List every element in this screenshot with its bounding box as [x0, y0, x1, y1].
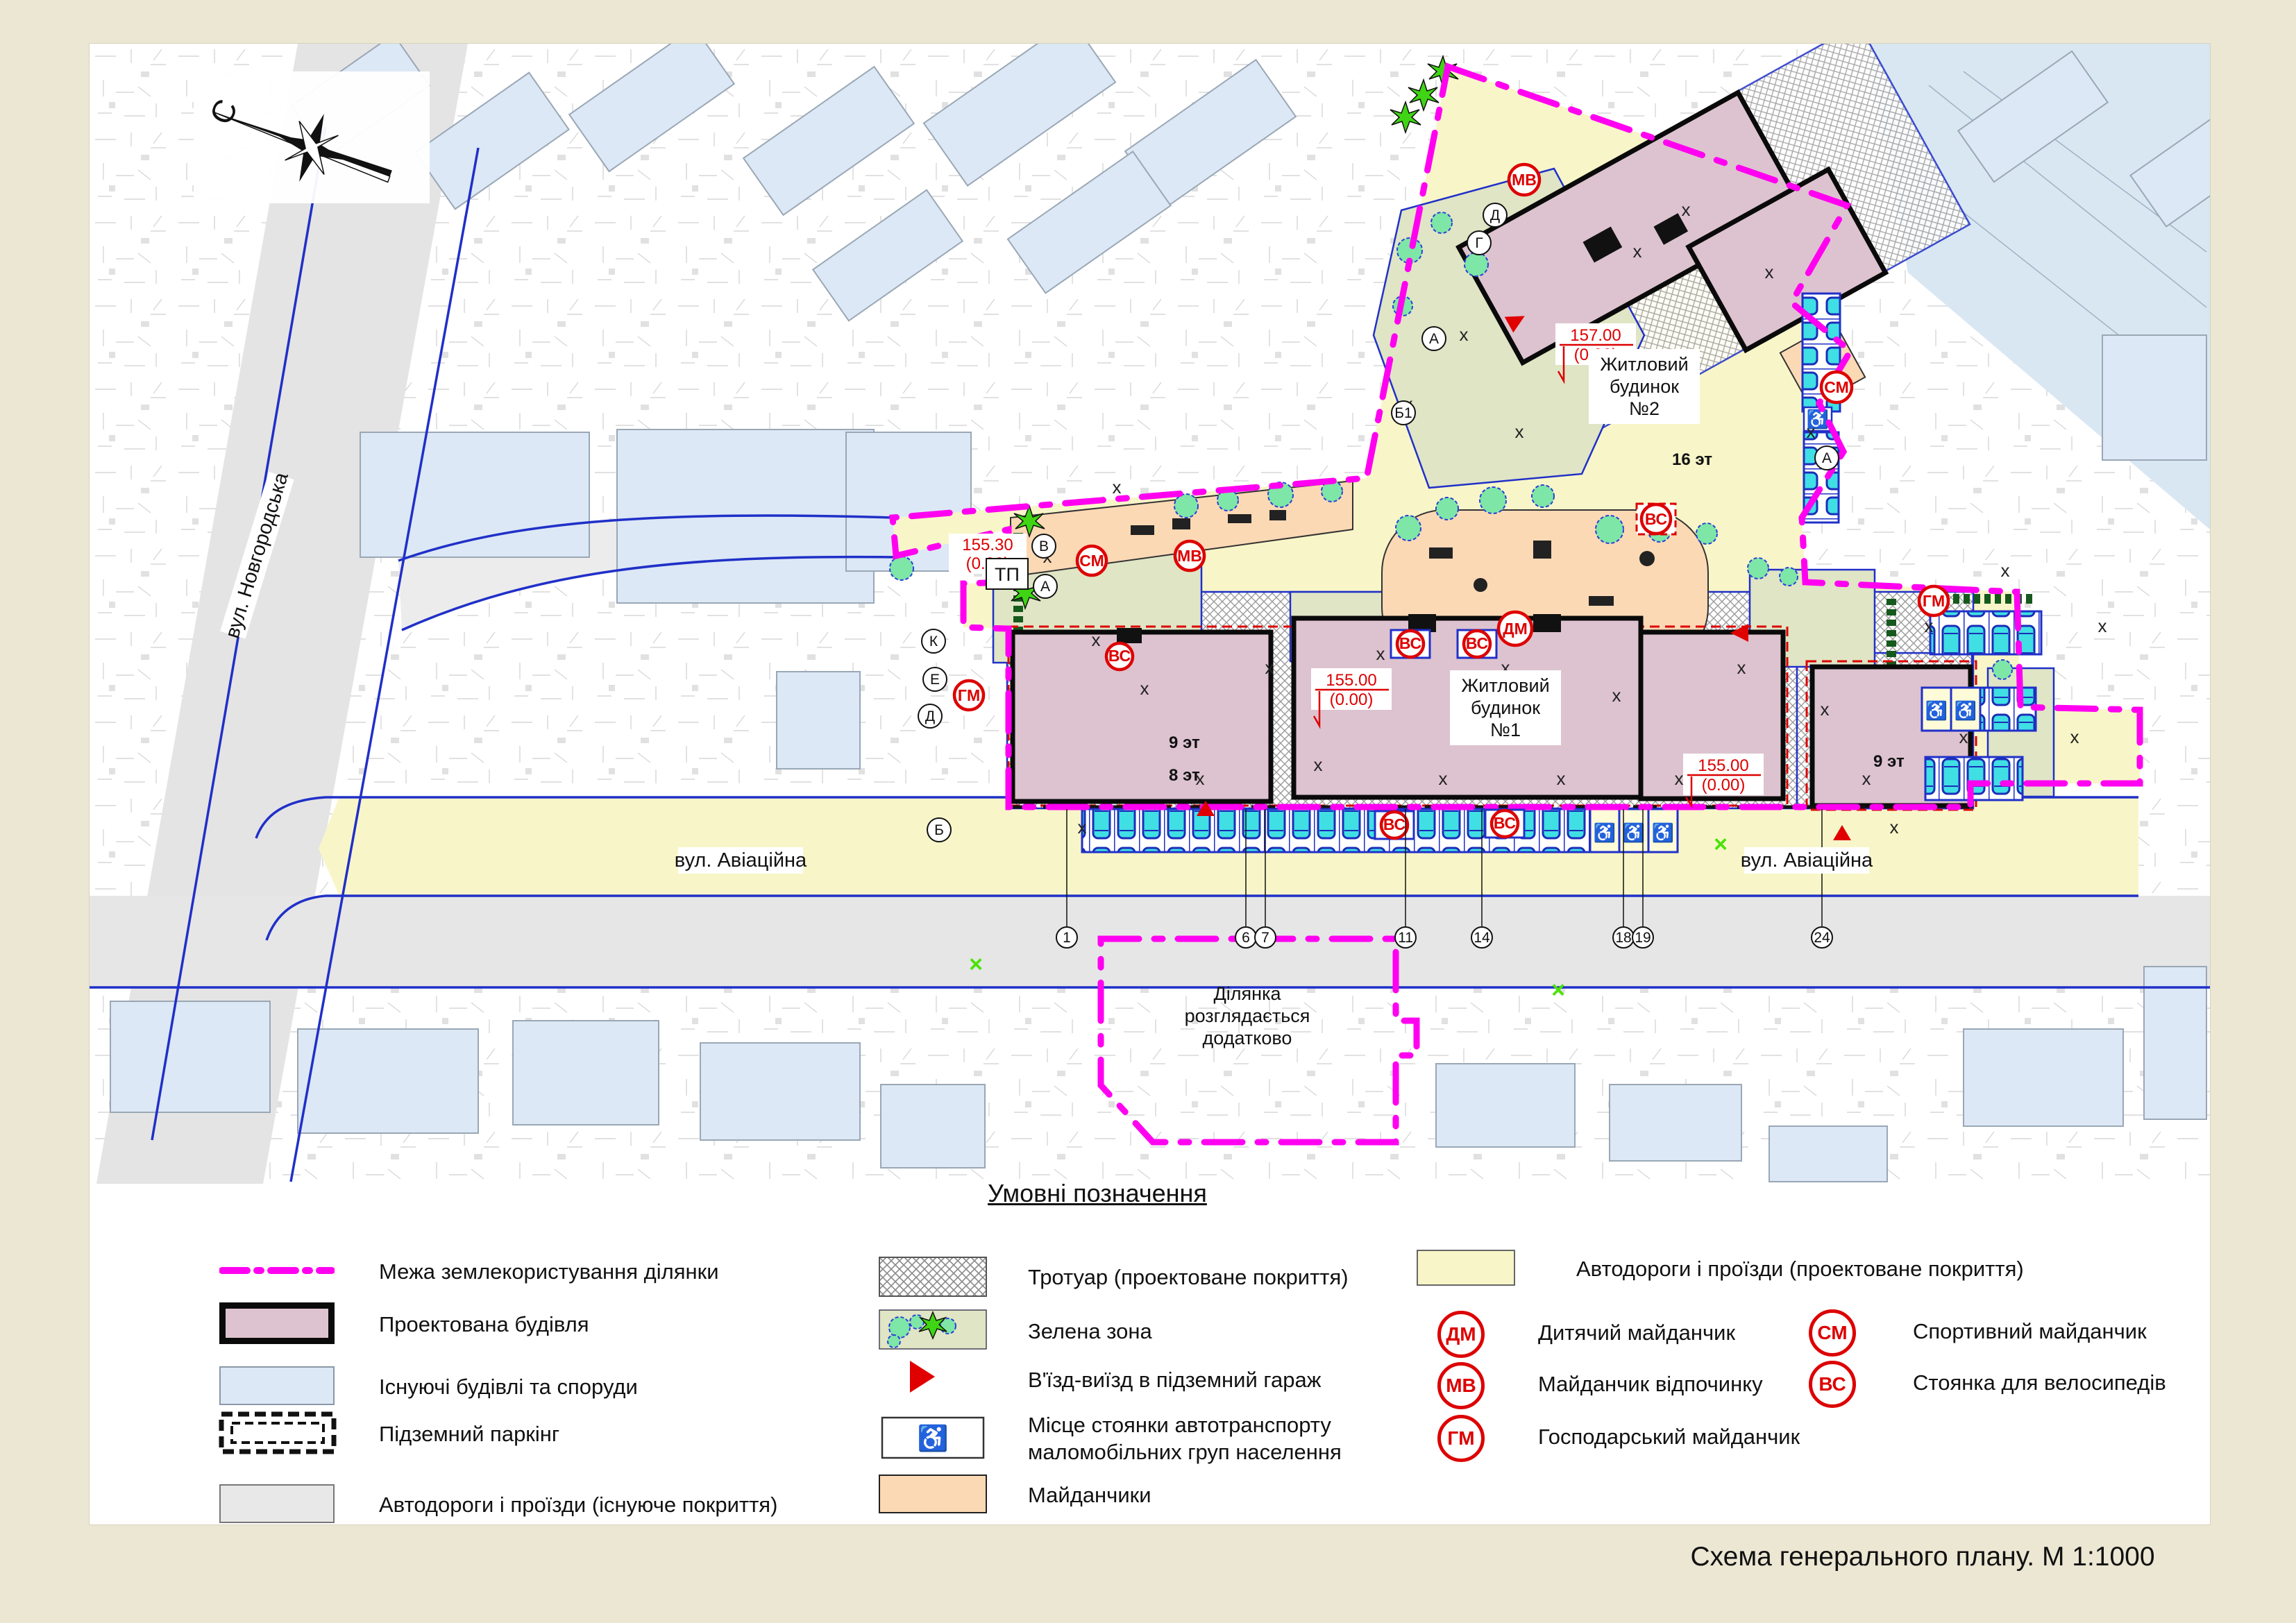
plan-title: Схема генерального плану. М 1:1000	[1652, 1542, 2193, 1572]
legend-label: Існуючі будівлі та споруди	[379, 1375, 638, 1400]
legend-marker-sm: СМ	[1809, 1309, 1856, 1357]
lime-x-mark: ×	[1714, 831, 1728, 858]
svg-text:x: x	[1807, 421, 1816, 442]
marker-vs: ВС	[1641, 504, 1671, 534]
plan-sheet: ♿ ♿ ♿ ♿ ♿ ♿ × × × xx xx xx	[89, 43, 2211, 1525]
svg-text:9 эт: 9 эт	[1873, 752, 1905, 771]
svg-text:Д: Д	[1490, 207, 1500, 223]
svg-text:x: x	[1675, 768, 1684, 789]
building-2-label: Житловий будинок №2	[1589, 349, 1700, 424]
legend-marker-gm: ГМ	[1437, 1415, 1485, 1462]
legend-label: Проектована будівля	[379, 1312, 589, 1337]
svg-text:x: x	[1092, 629, 1101, 650]
svg-text:x: x	[2098, 615, 2107, 636]
legend-existing-road-swatch	[219, 1484, 335, 1523]
street-aviatsiina-left: вул. Авіаційна	[675, 847, 807, 874]
wheelchair-icon: ♿	[1623, 822, 1645, 843]
svg-text:Житловий: Житловий	[1461, 675, 1549, 696]
svg-text:Б1: Б1	[1394, 405, 1412, 421]
legend-label: Автодороги і проїзди (існуюче покриття)	[379, 1493, 777, 1518]
legend-disabled-parking-swatch: ♿	[881, 1416, 985, 1459]
svg-text:СМ: СМ	[1824, 378, 1848, 396]
building-1-label: Житловий будинок №1	[1450, 670, 1561, 745]
svg-text:А: А	[1040, 579, 1050, 595]
svg-text:1: 1	[1063, 930, 1071, 946]
legend-label: Підземний паркінг	[379, 1422, 559, 1447]
svg-text:Ділянка: Ділянка	[1214, 983, 1282, 1004]
svg-text:вул. Авіаційна: вул. Авіаційна	[675, 849, 807, 872]
svg-text:157.00: 157.00	[1570, 326, 1621, 345]
svg-text:x: x	[1682, 199, 1691, 220]
svg-text:№2: №2	[1629, 398, 1660, 419]
svg-text:x: x	[1557, 768, 1566, 789]
svg-text:155.30: 155.30	[962, 536, 1013, 554]
svg-text:Б: Б	[934, 822, 944, 838]
svg-text:будинок: будинок	[1610, 376, 1679, 397]
legend-projected-road-swatch	[1417, 1250, 1515, 1286]
marker-sm: СМ	[1821, 372, 1852, 402]
svg-text:x: x	[1959, 726, 1968, 747]
svg-text:155.00: 155.00	[1326, 671, 1376, 690]
svg-text:(0.00): (0.00)	[1330, 690, 1374, 709]
svg-text:x: x	[1633, 241, 1642, 262]
svg-text:19: 19	[1635, 930, 1651, 946]
svg-text:18: 18	[1615, 930, 1631, 946]
svg-text:x: x	[1113, 477, 1122, 498]
legend-label: Межа землекористування ділянки	[379, 1259, 719, 1284]
legend-underground-parking-swatch	[218, 1411, 337, 1455]
marker-vs: ВС	[1106, 643, 1133, 670]
legend-boundary-line	[219, 1259, 335, 1282]
svg-text:В: В	[1039, 538, 1049, 554]
svg-text:Житловий: Житловий	[1600, 354, 1688, 375]
legend-projected-building-swatch	[219, 1302, 335, 1344]
marker-dm: ДМ	[1499, 612, 1532, 645]
marker-gm: ГМ	[954, 681, 984, 710]
svg-text:Г: Г	[1475, 235, 1483, 251]
svg-text:x: x	[1140, 678, 1149, 699]
svg-text:А: А	[1429, 331, 1439, 347]
svg-text:К: К	[929, 634, 938, 649]
wheelchair-icon: ♿	[1652, 822, 1674, 843]
svg-text:x: x	[1265, 657, 1274, 678]
street-aviatsiina-right: вул. Авіаційна	[1741, 847, 1873, 874]
marker-mv: МВ	[1509, 164, 1539, 195]
legend-label: Місце стоянки автотранспорту маломобільн…	[1028, 1412, 1430, 1466]
compass: С	[194, 71, 430, 210]
svg-text:ВС: ВС	[1466, 634, 1488, 652]
svg-text:ГМ: ГМ	[1923, 592, 1945, 610]
legend-existing-building-swatch	[219, 1366, 335, 1405]
lime-x-mark: ×	[1551, 977, 1565, 1003]
svg-text:ВС: ВС	[1383, 815, 1406, 833]
legend-marker-mv: МВ	[1437, 1362, 1485, 1409]
svg-text:вул. Авіаційна: вул. Авіаційна	[1741, 849, 1873, 872]
svg-text:155.00: 155.00	[1698, 756, 1748, 775]
svg-text:№1: №1	[1490, 720, 1521, 740]
lime-x-mark: ×	[969, 951, 983, 978]
legend-title: Умовні позначення	[952, 1179, 1243, 1208]
svg-text:x: x	[1737, 657, 1746, 678]
svg-text:x: x	[1612, 685, 1621, 706]
legend-marker-vs: ВС	[1809, 1361, 1856, 1408]
svg-text:МВ: МВ	[1512, 171, 1537, 189]
svg-text:ВС: ВС	[1494, 814, 1516, 832]
svg-text:x: x	[1376, 643, 1385, 664]
legend-label: Стоянка для велосипедів	[1913, 1370, 2166, 1395]
svg-text:ДМ: ДМ	[1503, 620, 1528, 638]
svg-text:♿: ♿	[918, 1424, 949, 1452]
legend-label: Автодороги і проїзди (проектоване покрит…	[1576, 1257, 2024, 1282]
legend-sidewalk-swatch	[879, 1257, 987, 1297]
wheelchair-icon: ♿	[1955, 700, 1977, 721]
svg-text:x: x	[1515, 421, 1524, 442]
svg-text:розглядається: розглядається	[1185, 1005, 1310, 1026]
transformer-label: ТП	[995, 564, 1020, 585]
legend-label: Дитячий майданчик	[1538, 1320, 1735, 1345]
svg-text:А: А	[1822, 450, 1832, 466]
legend-garage-entrance-triangle	[907, 1359, 938, 1394]
marker-vs: ВС	[1492, 810, 1518, 837]
legend-label: Майданчик відпочинку	[1538, 1372, 1763, 1397]
marker-vs: ВС	[1381, 812, 1408, 838]
svg-text:11: 11	[1398, 930, 1413, 946]
wheelchair-icon: ♿	[1594, 822, 1616, 843]
svg-text:7: 7	[1261, 930, 1269, 946]
wheelchair-icon: ♿	[1925, 700, 1948, 721]
svg-text:x: x	[2070, 726, 2079, 747]
svg-text:ГМ: ГМ	[958, 686, 980, 704]
svg-text:СМ: СМ	[1079, 552, 1104, 570]
svg-text:ВС: ВС	[1645, 510, 1667, 528]
svg-text:x: x	[1460, 324, 1469, 345]
svg-text:x: x	[1821, 699, 1830, 720]
legend-green-zone-swatch	[879, 1309, 987, 1350]
svg-text:(0.00): (0.00)	[1702, 776, 1746, 794]
marker-sm: СМ	[1077, 546, 1106, 575]
svg-text:Д: Д	[925, 708, 935, 724]
legend-label: Господарський майданчик	[1538, 1425, 1800, 1450]
svg-text:8 эт: 8 эт	[1169, 766, 1200, 785]
svg-text:6: 6	[1242, 930, 1250, 946]
svg-text:14: 14	[1474, 930, 1490, 946]
page: ♿ ♿ ♿ ♿ ♿ ♿ × × × xx xx xx	[0, 0, 2296, 1623]
svg-text:x: x	[1078, 817, 1087, 838]
svg-text:x: x	[2001, 560, 2010, 581]
svg-text:МВ: МВ	[1177, 547, 1202, 565]
marker-vs: ВС	[1464, 631, 1490, 657]
legend-label: Тротуар (проектоване покриття)	[1028, 1265, 1349, 1290]
svg-text:x: x	[1439, 768, 1448, 789]
svg-text:x: x	[1765, 262, 1774, 282]
svg-text:9 эт: 9 эт	[1169, 733, 1200, 752]
svg-text:додатково: додатково	[1203, 1028, 1292, 1048]
svg-text:ВС: ВС	[1108, 647, 1131, 665]
svg-text:24: 24	[1814, 930, 1830, 946]
marker-gm: ГМ	[1919, 586, 1948, 615]
marker-mv: МВ	[1175, 541, 1204, 570]
general-plan-map: ♿ ♿ ♿ ♿ ♿ ♿ × × × xx xx xx	[90, 44, 2210, 1184]
svg-text:x: x	[1890, 817, 1899, 838]
legend-label: Спортивний майданчик	[1913, 1319, 2147, 1344]
legend-label: Зелена зона	[1028, 1319, 1152, 1344]
marker-vs: ВС	[1397, 631, 1424, 657]
svg-text:x: x	[1314, 754, 1323, 775]
legend-marker-dm: ДМ	[1437, 1311, 1485, 1358]
svg-text:Е: Е	[930, 672, 940, 688]
legend-label: В'їзд-виїзд в підземний гараж	[1028, 1368, 1322, 1393]
svg-text:x: x	[1925, 615, 1934, 636]
legend-playground-swatch	[879, 1475, 987, 1513]
svg-text:16 эт: 16 эт	[1672, 450, 1712, 469]
legend-label: Майданчики	[1028, 1483, 1151, 1508]
svg-text:будинок: будинок	[1471, 697, 1540, 718]
svg-text:ВС: ВС	[1399, 634, 1421, 652]
svg-text:x: x	[1862, 768, 1871, 789]
